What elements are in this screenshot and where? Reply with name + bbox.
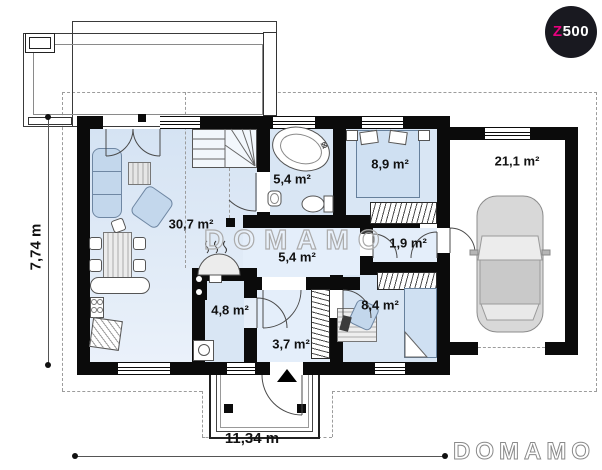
plan-symbols xyxy=(0,0,602,470)
bathroom-door-icon xyxy=(229,173,256,211)
terrace-door-icon xyxy=(106,129,160,156)
car-icon xyxy=(470,196,550,332)
room-label-garage: 21,1 m² xyxy=(495,154,540,169)
room-label-hallway: 5,4 m² xyxy=(278,250,316,265)
dim-dot xyxy=(45,114,51,120)
dim-label-vertical: 7,74 m xyxy=(28,224,45,271)
dim-label-horizontal: 11,34 m xyxy=(225,430,279,447)
room-label-utility: 4,8 m² xyxy=(211,303,249,318)
z500-logo-z: Z xyxy=(553,23,563,40)
bathtub-icon xyxy=(267,120,335,178)
dim-line-horizontal xyxy=(75,456,445,457)
z500-logo-500: 500 xyxy=(563,23,590,40)
dim-line-vertical xyxy=(48,117,49,365)
boiler-icon xyxy=(198,241,240,275)
room-label-living: 30,7 m² xyxy=(169,217,214,232)
dim-dot xyxy=(72,453,78,459)
dim-dot xyxy=(442,453,448,459)
stove-burners-icon xyxy=(92,300,103,313)
floor-plan: DOMAMO 30,7 m² 5,4 m² 8,9 m² 21,1 m² 5,4… xyxy=(0,0,602,470)
stairs-treads-icon xyxy=(192,129,255,168)
utility-door-icon xyxy=(257,298,287,328)
room-label-bedroom: 8,9 m² xyxy=(371,157,409,172)
room-label-closet: 1,9 m² xyxy=(389,236,427,251)
washbasin-icon xyxy=(268,191,281,206)
room-label-bathroom: 5,4 m² xyxy=(273,172,311,187)
bed-fold-icon xyxy=(405,332,427,357)
room-label-office: 8,4 m² xyxy=(361,298,399,313)
room-label-vestibule: 3,7 m² xyxy=(272,337,310,352)
z500-logo: Z500 xyxy=(545,6,597,58)
entrance-door-icon xyxy=(262,375,302,415)
toilet-icon xyxy=(302,196,333,212)
dim-dot xyxy=(45,362,51,368)
vestibule-door-icon xyxy=(263,290,301,328)
garage-door-icon xyxy=(450,228,475,253)
